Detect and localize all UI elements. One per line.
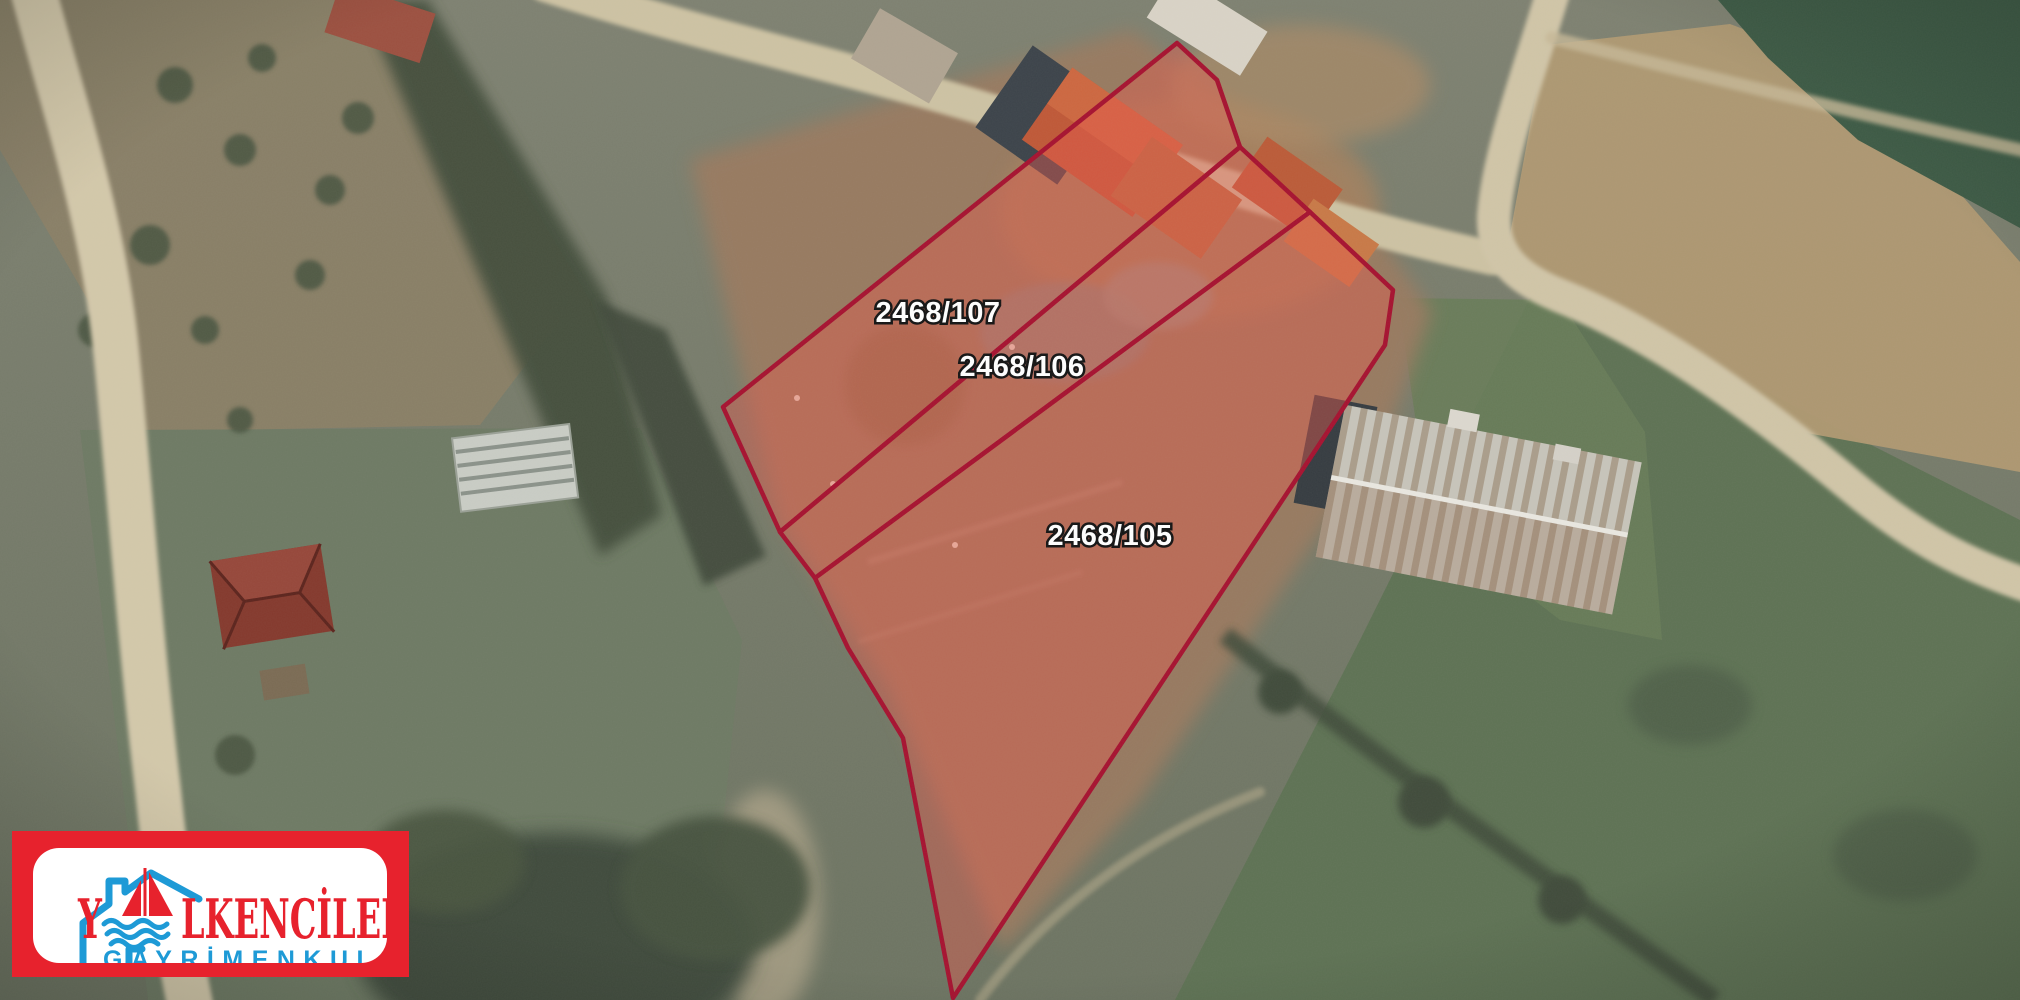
brand-rest: LKENCİLER (181, 892, 387, 946)
brand-name: YLKENCİLER® (78, 892, 387, 946)
satellite-map: 2468/107 2468/106 2468/105 (0, 0, 2020, 1000)
agency-logo: YLKENCİLER® GAYRİMENKUL (12, 831, 409, 977)
logo-card: YLKENCİLER® GAYRİMENKUL (33, 848, 387, 963)
brand-subtitle: GAYRİMENKUL (103, 946, 380, 963)
brand-initial: Y (78, 892, 102, 946)
